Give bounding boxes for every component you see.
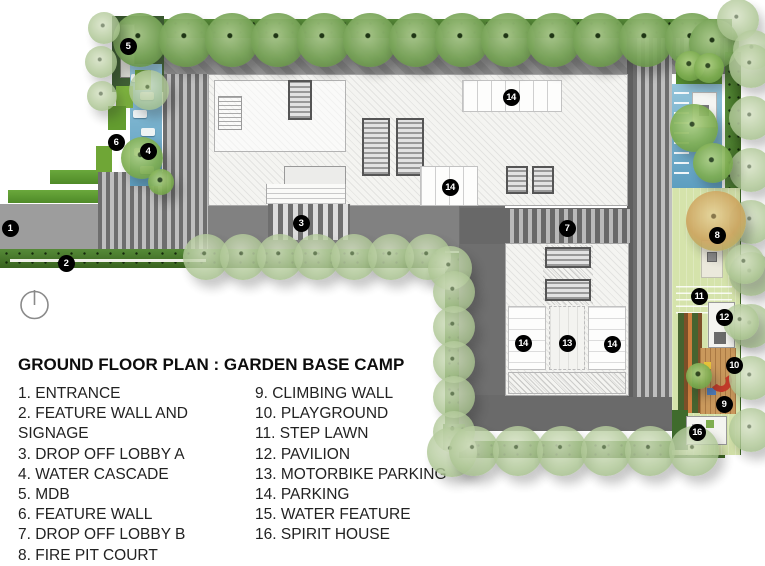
plan-marker-5: 5 [120, 38, 137, 55]
plan-title: GROUND FLOOR PLAN : GARDEN BASE CAMP [18, 355, 458, 375]
mep-room-a [506, 166, 528, 194]
plan-marker-10: 10 [726, 357, 743, 374]
legend-columns: 1. ENTRANCE2. FEATURE WALL AND SIGNAGE3.… [18, 384, 458, 566]
plan-marker-14: 14 [442, 179, 459, 196]
tree-icon [686, 363, 712, 389]
legend-item: 9. CLIMBING WALL [255, 384, 447, 404]
legend-item: 1. ENTRANCE [18, 384, 255, 404]
lower-elevator-core-b [545, 279, 591, 301]
mep-room-b [532, 166, 554, 194]
legend-column-1: 1. ENTRANCE2. FEATURE WALL AND SIGNAGE3.… [18, 384, 255, 566]
tree-icon [148, 169, 174, 195]
tree-icon [537, 426, 587, 476]
feature-wall-planter-4 [96, 146, 112, 172]
plan-marker-13: 13 [559, 335, 576, 352]
fire-pit [707, 252, 717, 262]
stair-block [218, 96, 242, 130]
legend-item: 4. WATER CASCADE [18, 465, 255, 485]
legend-item: 6. FEATURE WALL [18, 505, 255, 525]
legend-item: 12. PAVILION [255, 445, 447, 465]
plan-marker-14: 14 [604, 336, 621, 353]
pavilion-table [714, 332, 726, 344]
feature-wall-planter-3 [108, 106, 126, 130]
tree-icon [729, 148, 765, 192]
lower-elevator-core-a [545, 247, 591, 268]
tree-icon [725, 244, 765, 284]
legend-column-2: 9. CLIMBING WALL10. PLAYGROUND11. STEP L… [255, 384, 447, 566]
tree-icon [693, 143, 733, 183]
kitchen-counter [284, 166, 346, 185]
elevator-core-small [288, 80, 312, 120]
lobby-a-porch [266, 184, 346, 204]
tree-icon [625, 426, 675, 476]
bottom-road [459, 395, 700, 431]
legend-item: 10. PLAYGROUND [255, 404, 447, 424]
legend-item: 5. MDB [18, 485, 255, 505]
legend-item: 14. PARKING [255, 485, 447, 505]
tree-icon [729, 44, 765, 88]
lower-service-rooms [508, 372, 626, 394]
tree-icon [449, 426, 499, 476]
feature-wall-signage-line [10, 259, 206, 262]
legend-item: 15. WATER FEATURE [255, 505, 447, 525]
plan-marker-9: 9 [716, 396, 733, 413]
legend-item: 16. SPIRIT HOUSE [255, 525, 447, 545]
plan-marker-2: 2 [58, 255, 75, 272]
plan-marker-14: 14 [515, 335, 532, 352]
plan-marker-14: 14 [503, 89, 520, 106]
plan-marker-4: 4 [140, 143, 157, 160]
plan-marker-7: 7 [559, 220, 576, 237]
legend-item: 8. FIRE PIT COURT [18, 546, 255, 566]
east-canopy-louvers [633, 36, 672, 397]
tree-icon [581, 426, 631, 476]
plan-marker-8: 8 [709, 227, 726, 244]
tree-icon [88, 12, 120, 44]
legend-panel: GROUND FLOOR PLAN : GARDEN BASE CAMP 1. … [18, 288, 458, 566]
legend-item: 2. FEATURE WALL AND SIGNAGE [18, 404, 255, 444]
legend-item: 7. DROP OFF LOBBY B [18, 525, 255, 545]
plan-marker-1: 1 [2, 220, 19, 237]
plan-marker-6: 6 [108, 134, 125, 151]
ground-floor-plan-page: 123456789101112131414141416 GROUND FLOOR… [0, 0, 765, 524]
legend-item: 3. DROP OFF LOBBY A [18, 445, 255, 465]
west-canopy-louvers [163, 74, 208, 253]
north-arrow-icon [18, 288, 51, 321]
plan-marker-3: 3 [293, 215, 310, 232]
plan-marker-11: 11 [691, 288, 708, 305]
tree-icon [493, 426, 543, 476]
tree-icon [87, 81, 117, 111]
grass-strip-upper [50, 170, 98, 184]
tree-icon [129, 70, 169, 110]
tree-icon [729, 408, 765, 452]
tree-icon [694, 53, 724, 83]
legend-item: 11. STEP LAWN [255, 424, 447, 444]
elevator-core-a [362, 118, 390, 176]
plan-marker-16: 16 [689, 424, 706, 441]
plan-marker-12: 12 [716, 309, 733, 326]
spirit-house [706, 420, 714, 428]
legend-item: 13. MOTORBIKE PARKING [255, 465, 447, 485]
tree-icon [729, 96, 765, 140]
tree-icon [85, 46, 117, 78]
grass-strip-lower [8, 190, 98, 203]
